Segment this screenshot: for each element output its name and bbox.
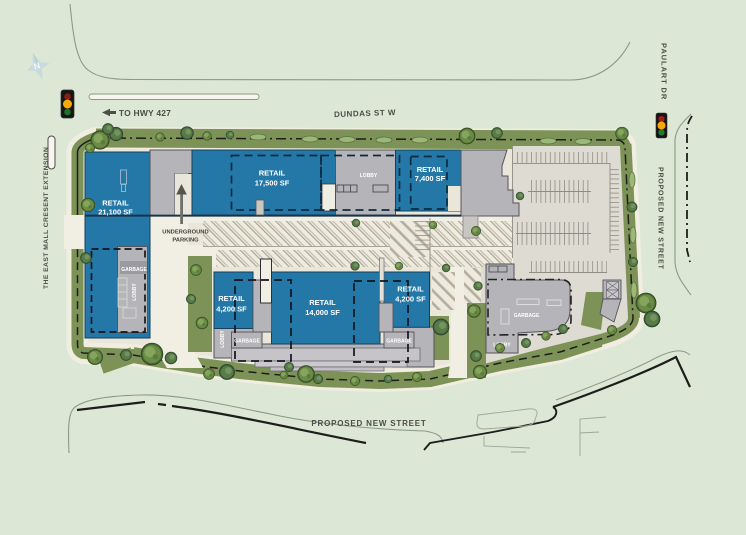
svg-text:PROPOSED NEW STREET: PROPOSED NEW STREET [311,419,426,428]
svg-text:GARBAGE: GARBAGE [234,339,260,345]
svg-text:7,400 SF: 7,400 SF [415,174,446,183]
svg-text:PROPOSED NEW STREET: PROPOSED NEW STREET [657,167,664,270]
svg-text:PAULART DR: PAULART DR [660,43,669,100]
svg-text:21,100 SF: 21,100 SF [98,208,133,217]
svg-text:17,500 SF: 17,500 SF [255,179,290,188]
svg-text:RETAIL: RETAIL [102,199,129,208]
svg-text:14,000 SF: 14,000 SF [305,308,340,317]
svg-text:PARKING: PARKING [172,238,199,244]
svg-text:RETAIL: RETAIL [417,165,444,174]
svg-text:RETAIL: RETAIL [218,294,245,303]
svg-text:RETAIL: RETAIL [259,169,286,178]
svg-text:4,200 SF: 4,200 SF [395,295,426,304]
svg-text:LOBBY: LOBBY [360,173,378,179]
svg-text:4,200 SF: 4,200 SF [216,305,247,314]
svg-text:RETAIL: RETAIL [397,285,424,294]
svg-text:LOBBY: LOBBY [132,283,138,301]
svg-text:GARBAGE: GARBAGE [121,267,147,273]
svg-text:GARBAGE: GARBAGE [386,339,412,345]
svg-text:GARBAGE: GARBAGE [514,313,540,319]
svg-text:THE EAST MALL CRESENT EXTENSIO: THE EAST MALL CRESENT EXTENSION [43,147,50,289]
svg-text:UNDERGROUND: UNDERGROUND [162,230,208,236]
svg-text:LOBBY: LOBBY [220,330,226,348]
svg-text:TO HWY 427: TO HWY 427 [119,108,171,118]
svg-text:RETAIL: RETAIL [309,298,336,307]
